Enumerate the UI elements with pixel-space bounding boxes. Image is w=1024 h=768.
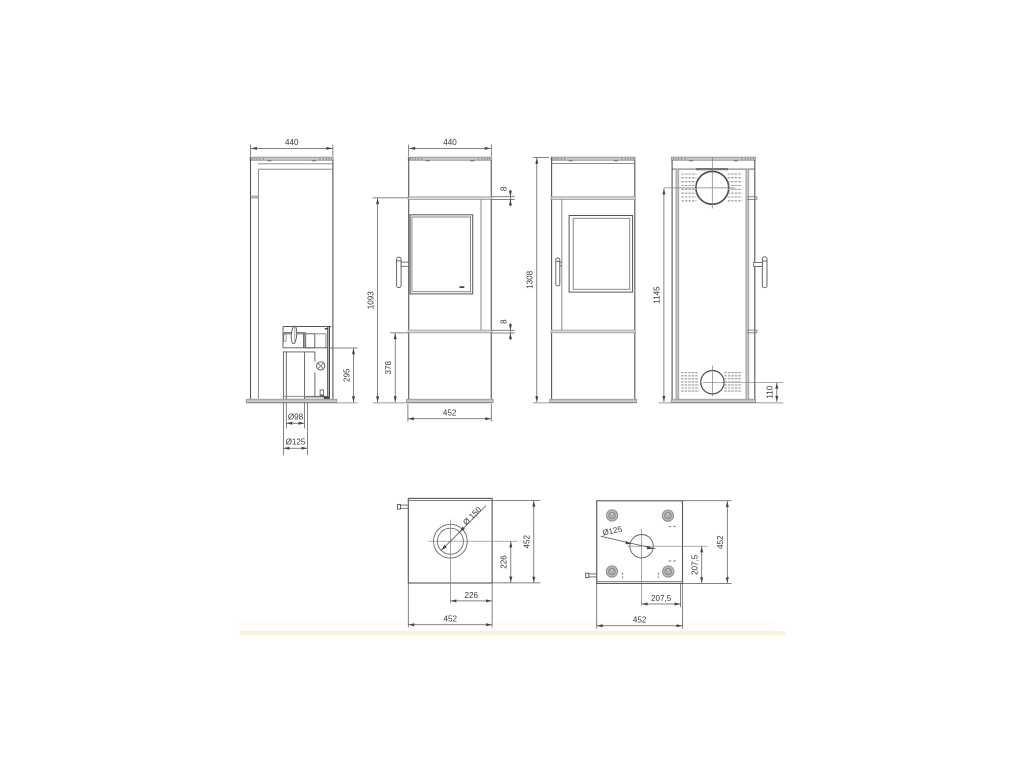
svg-text:295: 295 (343, 368, 352, 382)
svg-text:378: 378 (384, 360, 393, 374)
svg-text:1093: 1093 (366, 291, 375, 310)
svg-text:110: 110 (766, 385, 775, 398)
svg-text:452: 452 (443, 615, 457, 624)
svg-text:226: 226 (500, 555, 509, 569)
svg-text:8: 8 (499, 319, 508, 324)
svg-text:207,5: 207,5 (691, 554, 700, 575)
svg-text:Ø98: Ø98 (288, 412, 304, 421)
svg-text:452: 452 (716, 535, 725, 549)
svg-text:452: 452 (633, 616, 647, 625)
svg-text:Ø125: Ø125 (286, 437, 306, 446)
svg-text:452: 452 (443, 409, 457, 418)
svg-text:207,5: 207,5 (651, 594, 672, 603)
svg-text:1145: 1145 (653, 286, 662, 304)
svg-text:226: 226 (464, 591, 478, 600)
svg-text:440: 440 (443, 138, 457, 147)
svg-text:440: 440 (285, 138, 299, 147)
svg-text:452: 452 (523, 534, 532, 548)
svg-text:8: 8 (499, 186, 508, 191)
svg-text:1308: 1308 (526, 270, 535, 289)
